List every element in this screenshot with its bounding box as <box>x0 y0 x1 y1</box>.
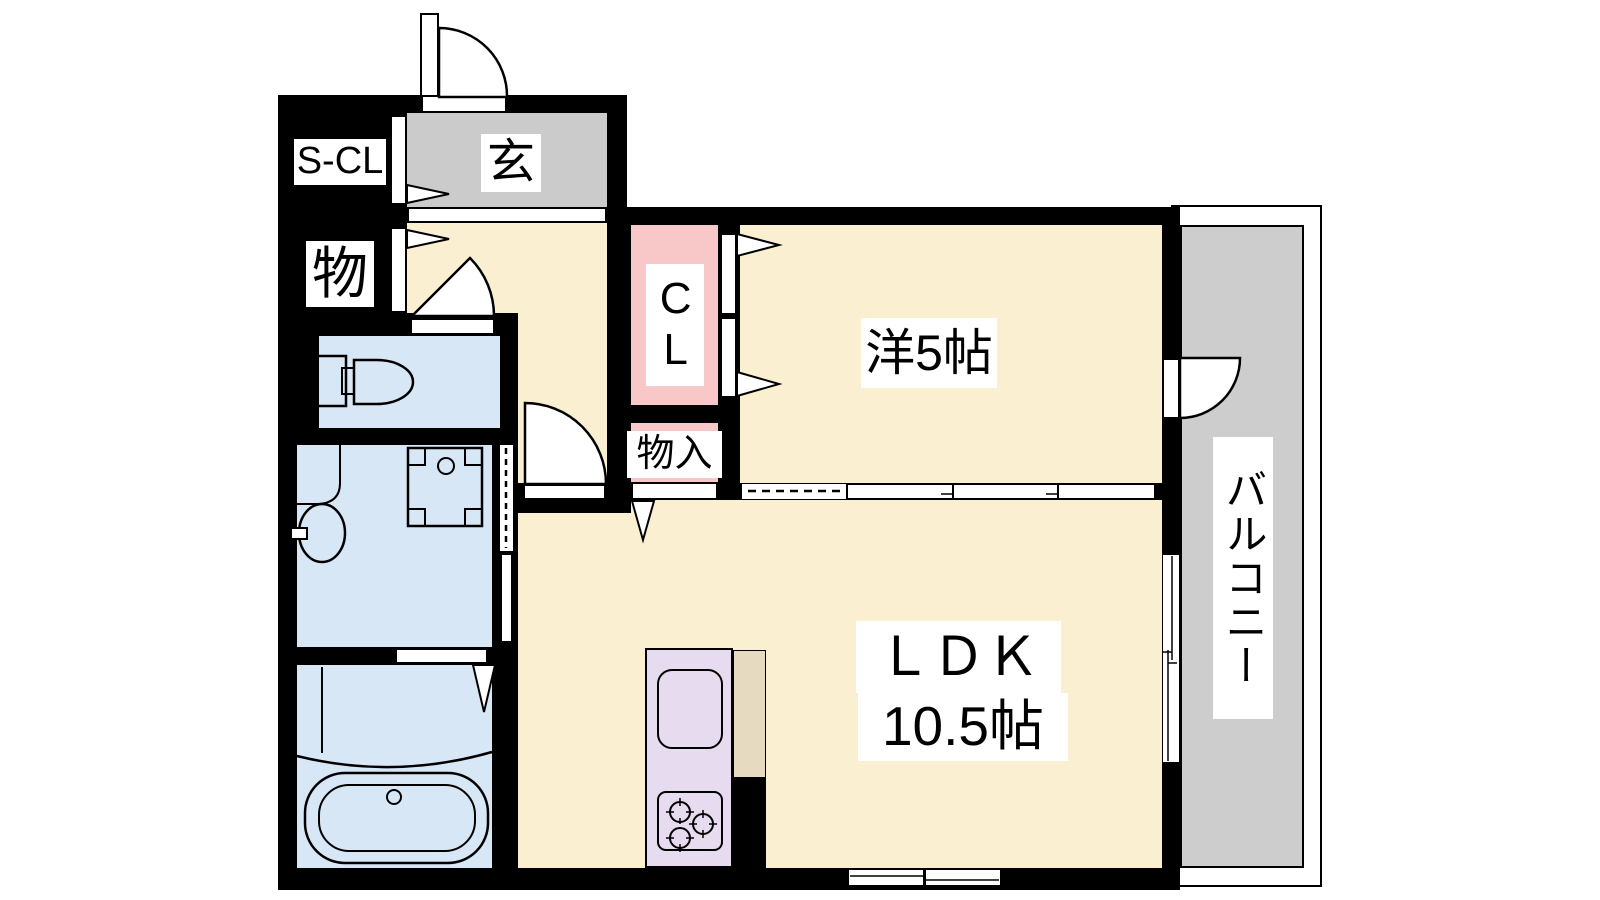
wall-entrance-right <box>607 95 627 225</box>
floorplan-canvas: S-CL 玄 物 CL 物入 洋5帖 ＬＤＫ 10.5帖 バルコニー <box>0 0 1600 900</box>
label-ldk: ＬＤＫ <box>856 621 1061 693</box>
washroom-sliding-door-panel <box>500 553 513 643</box>
label-western-room: 洋5帖 <box>861 318 997 388</box>
partition-pocket <box>742 484 846 499</box>
entrance-door-leaf <box>420 13 439 97</box>
closet-door-upper <box>720 233 737 315</box>
partition-panel-3 <box>1058 484 1155 499</box>
balcony-window <box>1162 554 1180 763</box>
bathroom-floor <box>297 665 492 868</box>
label-balcony: バルコニー <box>1213 437 1273 719</box>
label-storage: 物 <box>306 241 374 307</box>
washroom-sliding-door-pocket <box>500 445 513 551</box>
ldk-window-right <box>924 868 1002 887</box>
hall-ldk-door-leaf <box>523 484 606 500</box>
wall-right <box>1162 207 1180 868</box>
shoe-closet-door <box>390 115 407 205</box>
kitchen-counter <box>645 648 733 868</box>
wall-top-right <box>607 207 1180 225</box>
partition-panel-2 <box>953 484 1058 499</box>
label-entrance: 玄 <box>481 134 541 192</box>
label-closet: CL <box>646 264 704 386</box>
label-ldk-size: 10.5帖 <box>858 693 1068 761</box>
kitchen-counter-end <box>733 650 766 778</box>
ldk-window-left <box>847 868 925 887</box>
closet-door-lower <box>720 317 737 398</box>
washroom-floor <box>297 445 492 647</box>
entrance-threshold <box>421 95 507 113</box>
kitchen-wall-stub <box>733 778 766 868</box>
entrance-door-arc <box>439 28 507 97</box>
label-shoe-closet: S-CL <box>294 139 386 185</box>
partition-panel-1 <box>847 484 953 499</box>
balcony-door-leaf <box>1162 358 1180 419</box>
entrance-step <box>407 207 607 223</box>
bathroom-door <box>395 648 488 664</box>
storage-door <box>390 227 407 313</box>
inner-storage-door <box>631 482 718 500</box>
toilet-door-leaf <box>410 318 495 335</box>
ldk-floor <box>518 500 1162 868</box>
toilet-floor <box>319 336 500 428</box>
label-inner-storage: 物入 <box>627 431 722 478</box>
